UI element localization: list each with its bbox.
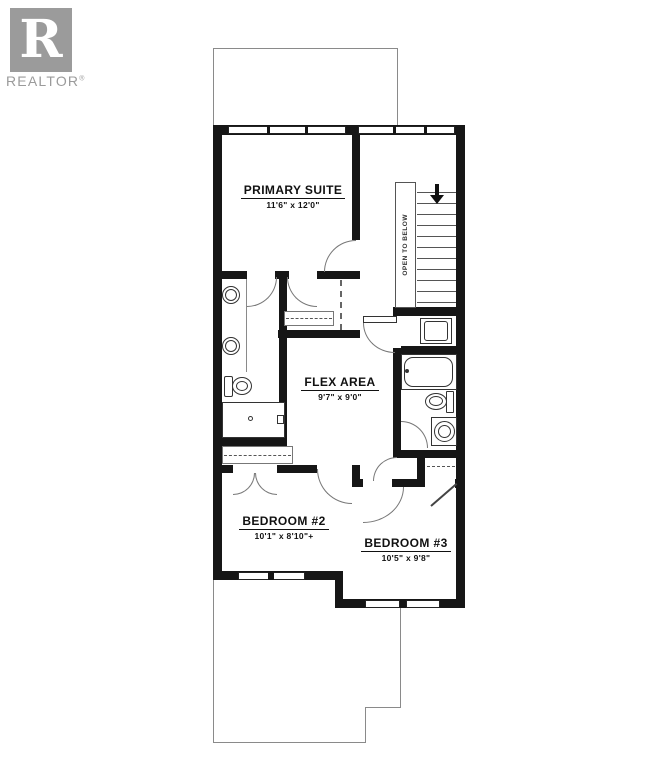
door-arc-primary-closet [287, 277, 317, 307]
stair-tread [417, 247, 456, 248]
toilet-bowl-inner-icon [429, 396, 443, 406]
stair-tread [417, 236, 456, 237]
window-bedroom3-right [406, 600, 440, 608]
window-mullion [305, 126, 308, 134]
window-stairwell [358, 126, 455, 134]
door-leaf-bedroom3-closet [430, 483, 457, 507]
bathtub-faucet-icon [405, 369, 409, 373]
wall-exterior-bedroom3-bottom [335, 599, 465, 608]
wall-stair-bottom [393, 307, 465, 316]
footprint-outline [365, 707, 401, 708]
closet-rod [224, 455, 291, 456]
shower-icon [222, 402, 285, 438]
wall-segment [222, 271, 247, 279]
footprint-outline [400, 608, 401, 708]
window-mullion [424, 126, 427, 134]
door-arc-primary-suite [324, 240, 356, 272]
wall-segment [277, 465, 317, 473]
realtor-logo-icon: R [10, 8, 72, 72]
sink-basin-icon [225, 340, 237, 352]
stair-open-to-below-box: OPEN TO BELOW [395, 182, 416, 308]
wall-segment [317, 271, 360, 279]
window-mullion [393, 126, 396, 134]
window-mullion [268, 572, 274, 580]
room-label-bedroom-3: BEDROOM #3 10'5" x 9'8" [336, 534, 476, 563]
wall-bath-bottom [393, 450, 465, 458]
toilet-bowl-inner-icon [236, 381, 248, 391]
sink-basin-icon [225, 289, 237, 301]
door-arc-bedroom2-closet-left [233, 473, 255, 495]
realtor-logo-letter: R [19, 9, 62, 71]
room-dimensions: 9'7" x 9'0" [280, 392, 400, 402]
door-arc-ensuite [247, 277, 277, 307]
registered-trademark-symbol: ® [79, 75, 85, 82]
door-arc-bedroom2-closet-right [255, 473, 277, 495]
stair-tread [417, 225, 456, 226]
room-name: FLEX AREA [301, 375, 378, 391]
toilet-tank-icon [446, 391, 454, 413]
room-label-primary-suite: PRIMARY SUITE 11'6" x 12'0" [213, 181, 373, 210]
stair-tread [417, 258, 456, 259]
closet-divider [340, 280, 342, 330]
window-bedroom3-left [365, 600, 400, 608]
room-name: BEDROOM #2 [239, 514, 328, 530]
wall-shower-bottom [222, 438, 287, 446]
door-arc-bedroom3 [363, 487, 404, 523]
stair-tread [417, 302, 456, 303]
footprint-outline [213, 742, 366, 743]
stair-tread [417, 280, 456, 281]
laundry-unit-inner-icon [424, 321, 448, 341]
room-name: BEDROOM #3 [361, 536, 450, 552]
sink-basin-icon [438, 425, 451, 438]
window-mullion [267, 126, 270, 134]
shower-valve-icon [277, 415, 284, 424]
floor-plan-page: R REALTOR® OPEN TO BELOW [0, 0, 663, 768]
stair-tread [417, 214, 456, 215]
room-dimensions: 11'6" x 12'0" [213, 200, 373, 210]
room-dimensions: 10'1" x 8'10"+ [214, 531, 354, 541]
stair-tread [417, 269, 456, 270]
footprint-outline [213, 580, 214, 743]
realtor-logo-wordmark: REALTOR® [6, 73, 86, 89]
footprint-outline [365, 707, 366, 743]
room-name: PRIMARY SUITE [241, 183, 346, 199]
closet-rod [286, 318, 332, 319]
stair-note-label: OPEN TO BELOW [402, 214, 409, 276]
closet-rod [427, 466, 455, 467]
stairs-down-arrow-head-icon [430, 195, 444, 204]
door-arc-bathroom [363, 323, 395, 353]
door-arc-bath-interior [401, 421, 428, 448]
door-arc-bedroom2 [317, 469, 352, 504]
wall-flex-top [278, 330, 360, 338]
door-arc-linen-closet [373, 457, 397, 481]
footprint-outline-top [213, 48, 398, 126]
window-primary-suite [228, 126, 346, 134]
room-dimensions: 10'5" x 9'8" [336, 553, 476, 563]
wall-bath-tub-divider [401, 346, 458, 354]
shower-drain-icon [248, 416, 253, 421]
wall-segment [213, 465, 233, 473]
room-label-flex-area: FLEX AREA 9'7" x 9'0" [280, 373, 400, 402]
room-label-bedroom-2: BEDROOM #2 10'1" x 8'10"+ [214, 512, 354, 541]
wall-segment [352, 479, 363, 487]
bathtub-basin-icon [404, 357, 453, 387]
door-leaf-bathroom [363, 316, 397, 323]
stair-tread [417, 291, 456, 292]
